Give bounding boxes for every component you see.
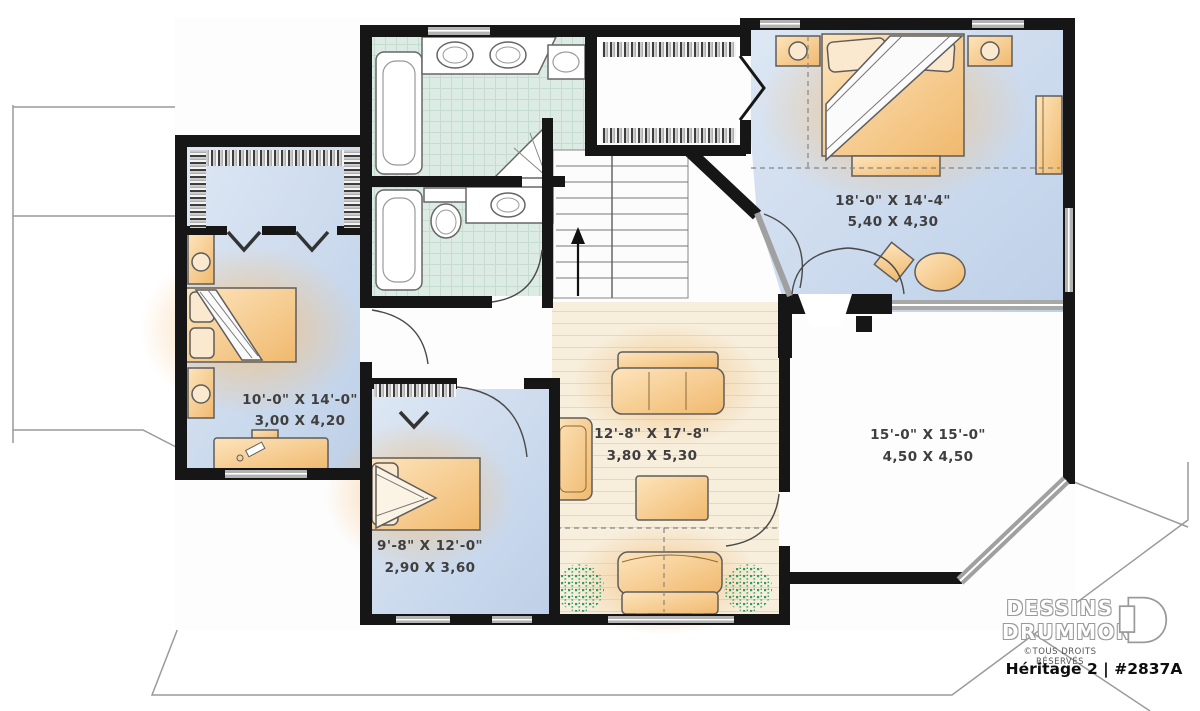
left-bedroom-dimensions-metric: 3,00 X 4,20 bbox=[255, 413, 346, 429]
bed-icon bbox=[822, 34, 964, 176]
double-vanity-icon bbox=[422, 37, 556, 74]
plant-icon bbox=[556, 564, 604, 612]
lamp-icon bbox=[789, 42, 807, 60]
bottom-bedroom-dimensions-imperial: 9'-8" X 12'-0" bbox=[377, 538, 483, 554]
bed-icon bbox=[186, 288, 296, 362]
open-area-dimensions-metric: 4,50 X 4,50 bbox=[883, 449, 974, 465]
bottom-bedroom-furniture bbox=[368, 458, 480, 530]
family-room-dimensions-metric: 3,80 X 5,30 bbox=[607, 448, 698, 464]
master-bedroom-dimensions-metric: 5,40 X 4,30 bbox=[848, 214, 939, 230]
lamp-icon bbox=[192, 253, 210, 271]
plan-title: Héritage 2 | #2837A bbox=[998, 660, 1190, 678]
plant-icon bbox=[724, 564, 772, 612]
brand-line1: DESSINS bbox=[1006, 596, 1113, 620]
floor-plan-page: 18'-0" X 14'-4" 5,40 X 4,30 10'-0" X 14'… bbox=[0, 0, 1200, 711]
lamp-icon bbox=[981, 42, 999, 60]
vanity-sink-icon bbox=[466, 187, 553, 223]
family-room-dimensions-imperial: 12'-8" X 17'-8" bbox=[594, 426, 710, 442]
lamp-icon bbox=[192, 385, 210, 403]
left-bedroom-dimensions-imperial: 10'-0" X 14'-0" bbox=[242, 392, 358, 408]
chair-icon bbox=[915, 253, 965, 291]
bathtub-icon bbox=[376, 52, 422, 174]
coffee-table-icon bbox=[636, 476, 708, 520]
bottom-bedroom-dimensions-metric: 2,90 X 3,60 bbox=[385, 560, 476, 576]
brand-logo-text: DESSINS DRUMMOND bbox=[1002, 596, 1118, 644]
loveseat-icon bbox=[612, 352, 724, 414]
corner-sink-icon bbox=[548, 45, 585, 79]
drummond-d-logo-icon bbox=[1118, 590, 1168, 650]
bathtub2-icon bbox=[376, 190, 422, 290]
open-area-dimensions-imperial: 15'-0" X 15'-0" bbox=[870, 427, 986, 443]
staircase bbox=[553, 150, 688, 298]
bed-icon bbox=[368, 458, 480, 530]
master-bedroom-dimensions-imperial: 18'-0" X 14'-4" bbox=[835, 193, 951, 209]
dresser-icon bbox=[1036, 96, 1062, 174]
sofa-icon bbox=[618, 552, 722, 620]
